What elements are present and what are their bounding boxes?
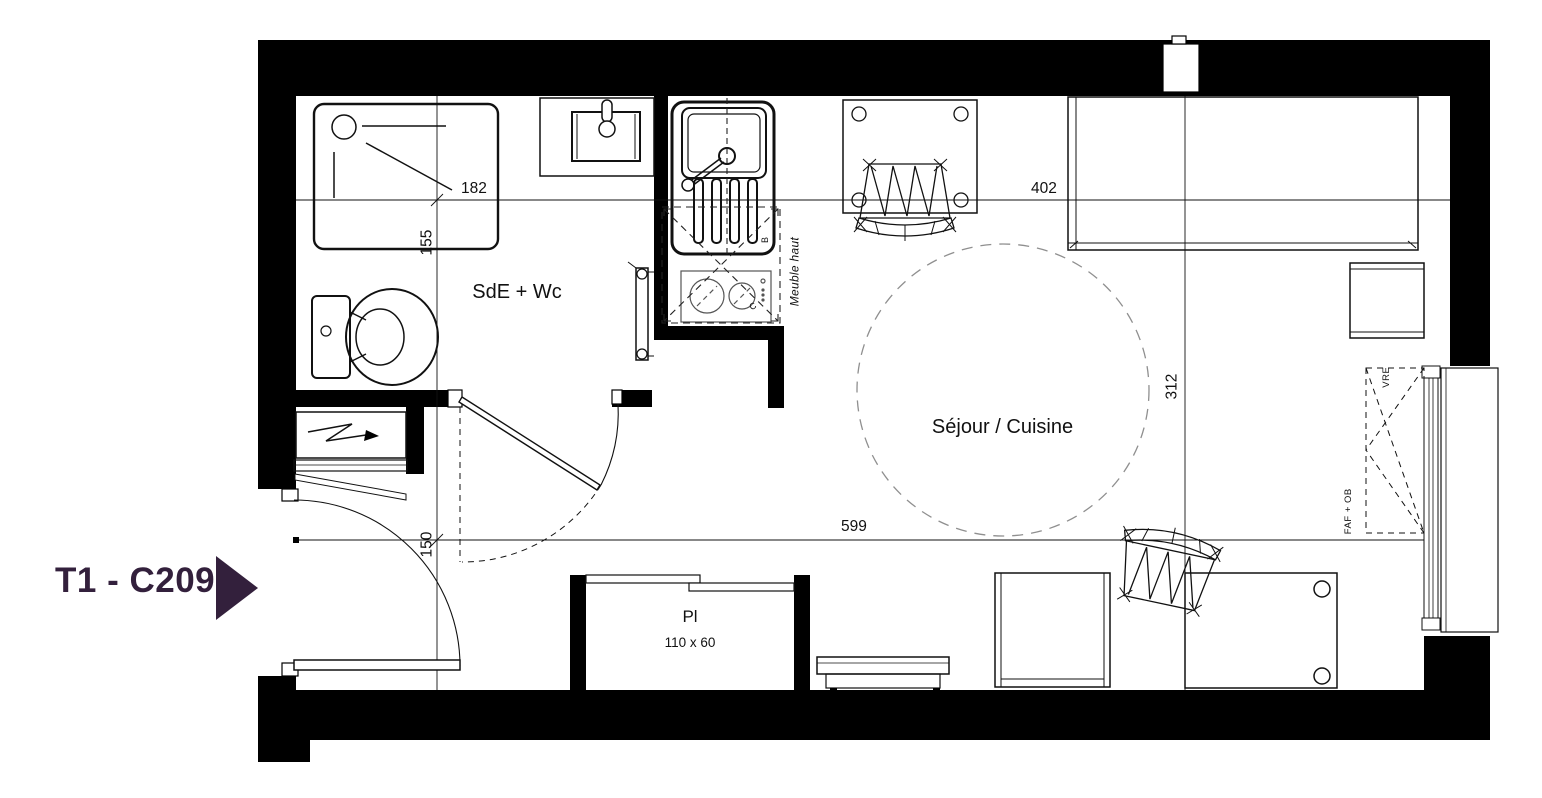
kitchen-sink xyxy=(672,102,774,254)
storage-cabinet xyxy=(995,573,1110,687)
sink-tag-label: B xyxy=(761,232,771,248)
towel-radiator xyxy=(628,262,654,360)
balcony-slab xyxy=(1441,368,1498,632)
floor-plan-drawing xyxy=(0,0,1542,798)
bed xyxy=(1068,97,1418,250)
closet-label: Pl xyxy=(640,608,740,627)
wall-details xyxy=(282,36,1199,676)
living-room-label: Séjour / Cuisine xyxy=(910,416,1095,438)
bathroom-label: SdE + Wc xyxy=(452,281,582,303)
toilet xyxy=(312,289,438,385)
shower xyxy=(314,104,498,249)
washbasin xyxy=(540,98,654,176)
dim-182: 182 xyxy=(461,180,487,197)
coffee-table xyxy=(817,657,949,693)
bathroom-door xyxy=(459,397,618,562)
cooktop xyxy=(681,271,771,322)
interior-walls xyxy=(296,96,810,690)
window-type-label: FAF + OB xyxy=(1344,483,1354,539)
chair-at-desk xyxy=(1108,517,1225,618)
closet-size-label: 110 x 60 xyxy=(640,636,740,651)
unit-arrow-icon xyxy=(216,556,258,620)
dim-312: 312 xyxy=(1163,367,1180,407)
dim-402: 402 xyxy=(1031,180,1057,197)
electrical-panel xyxy=(294,412,407,500)
clearance-circle xyxy=(857,244,1149,536)
desk xyxy=(1185,573,1337,688)
unit-label: T1 - C209 xyxy=(55,562,215,601)
dim-150: 150 xyxy=(418,525,435,565)
floor-plan-canvas: T1 - C209 SdE + Wc Séjour / Cuisine Pl 1… xyxy=(0,0,1542,798)
french-window xyxy=(1366,366,1498,632)
closet-sliding-doors xyxy=(586,575,794,591)
dim-155: 155 xyxy=(418,223,435,263)
upper-cabinet-label: Meuble haut xyxy=(788,232,801,312)
window-shutter-label: VRE xyxy=(1382,360,1392,394)
dim-599: 599 xyxy=(841,518,867,535)
window-opening-dashes xyxy=(1366,368,1424,533)
nightstand xyxy=(1350,263,1424,338)
